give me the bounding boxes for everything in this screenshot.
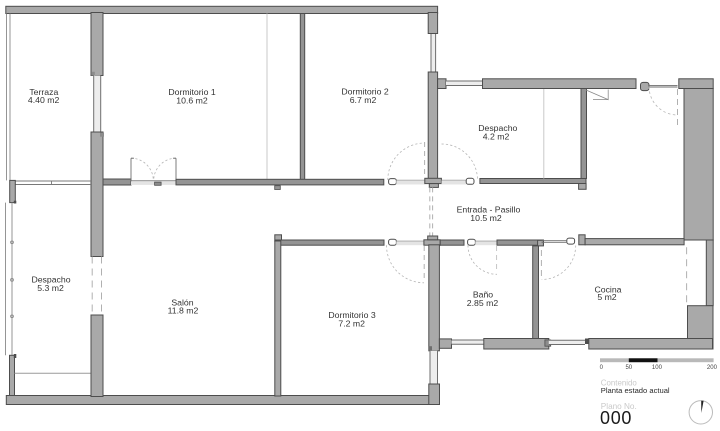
svg-text:10.5 m2: 10.5 m2 [470, 213, 502, 223]
svg-text:000: 000 [600, 408, 632, 428]
svg-text:5.3 m2: 5.3 m2 [37, 283, 64, 293]
svg-text:5 m2: 5 m2 [597, 292, 616, 302]
svg-text:50: 50 [625, 365, 632, 371]
svg-text:0: 0 [600, 365, 604, 371]
svg-text:6.7 m2: 6.7 m2 [350, 95, 377, 105]
svg-text:200: 200 [707, 365, 718, 371]
svg-text:4.40 m2: 4.40 m2 [28, 95, 60, 105]
svg-text:10.6 m2: 10.6 m2 [176, 96, 208, 106]
svg-text:7.2 m2: 7.2 m2 [338, 318, 365, 328]
svg-text:11.8 m2: 11.8 m2 [168, 306, 199, 316]
svg-text:100: 100 [652, 365, 663, 371]
svg-text:2.85 m2: 2.85 m2 [467, 298, 499, 308]
svg-text:4.2 m2: 4.2 m2 [483, 131, 510, 141]
svg-text:Planta estado actual: Planta estado actual [601, 386, 670, 395]
